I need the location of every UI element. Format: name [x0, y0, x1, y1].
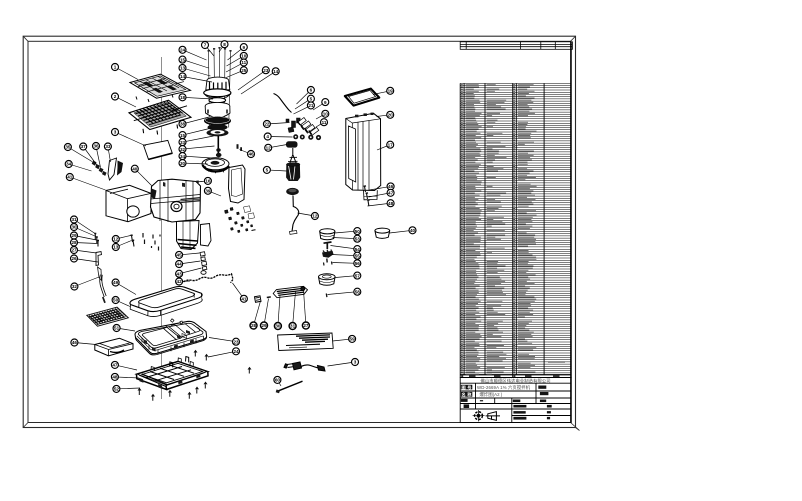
svg-text:16: 16 [205, 179, 211, 184]
svg-text:30: 30 [275, 324, 281, 329]
svg-text:31: 31 [290, 324, 296, 329]
svg-text:15: 15 [180, 133, 186, 138]
svg-text:49: 49 [113, 280, 119, 285]
svg-text:56: 56 [355, 261, 361, 266]
svg-text:名称: 名称 [462, 391, 473, 398]
svg-text:11: 11 [322, 120, 327, 125]
svg-text:爆炸图(A2 ): 爆炸图(A2 ) [480, 391, 503, 398]
svg-text:36: 36 [93, 144, 99, 149]
svg-text:7: 7 [204, 43, 207, 48]
svg-text:24: 24 [233, 349, 239, 354]
svg-text:32: 32 [72, 284, 78, 289]
svg-text:58: 58 [355, 289, 361, 294]
svg-text:20: 20 [388, 112, 394, 117]
svg-text:40: 40 [132, 166, 138, 171]
svg-text:50: 50 [113, 298, 119, 303]
svg-text:34: 34 [180, 154, 186, 159]
svg-text:23: 23 [263, 68, 269, 73]
svg-text:1: 1 [114, 65, 117, 70]
svg-text:57: 57 [355, 273, 361, 278]
svg-text:27: 27 [71, 248, 77, 253]
svg-text:18: 18 [180, 95, 186, 100]
svg-text:12: 12 [113, 237, 119, 242]
svg-text:35: 35 [65, 145, 71, 150]
svg-text:32: 32 [180, 147, 186, 152]
svg-text:47: 47 [388, 190, 394, 195]
svg-text:30: 30 [71, 225, 77, 230]
svg-text:29: 29 [261, 323, 267, 328]
svg-text:46: 46 [248, 152, 254, 157]
svg-text:22: 22 [264, 122, 270, 127]
svg-text:WD-2669A 1% 六页搅拌机: WD-2669A 1% 六页搅拌机 [477, 384, 531, 391]
svg-text:4: 4 [266, 134, 269, 139]
svg-text:31: 31 [71, 217, 77, 222]
svg-text:15: 15 [180, 57, 186, 62]
svg-text:47: 47 [112, 363, 118, 368]
svg-text:佛山市顺德区伟达电业制造有限公司: 佛山市顺德区伟达电业制造有限公司 [481, 377, 551, 384]
svg-text:52: 52 [114, 387, 120, 392]
svg-text:41: 41 [241, 296, 247, 301]
svg-text:50: 50 [355, 229, 361, 234]
svg-text:23: 23 [233, 339, 239, 344]
svg-text:13: 13 [113, 245, 119, 250]
svg-text:9: 9 [243, 45, 246, 50]
svg-text:8: 8 [223, 42, 226, 47]
svg-text:45: 45 [177, 253, 183, 258]
svg-text:33: 33 [180, 140, 186, 145]
svg-text:3: 3 [354, 360, 357, 365]
svg-text:10: 10 [323, 111, 329, 116]
svg-text:37: 37 [81, 144, 87, 149]
svg-text:13: 13 [180, 66, 186, 71]
svg-text:10: 10 [241, 54, 247, 59]
svg-text:3: 3 [114, 130, 117, 135]
svg-text:12: 12 [266, 145, 272, 150]
svg-text:33: 33 [105, 144, 111, 149]
svg-text:19: 19 [388, 88, 394, 93]
svg-text:38: 38 [180, 122, 186, 127]
svg-text:14: 14 [273, 69, 279, 74]
svg-text:60: 60 [275, 378, 281, 383]
svg-text:46: 46 [72, 340, 78, 345]
svg-text:42: 42 [177, 279, 183, 284]
svg-text:39: 39 [205, 188, 211, 193]
svg-text:5: 5 [266, 168, 269, 173]
svg-text:53: 53 [355, 236, 361, 241]
svg-text:9: 9 [324, 100, 327, 105]
svg-text:51: 51 [114, 326, 120, 331]
svg-text:59: 59 [350, 337, 356, 342]
svg-text:27: 27 [303, 323, 309, 328]
svg-text:48: 48 [388, 201, 394, 206]
svg-text:48: 48 [112, 375, 118, 380]
svg-text:2: 2 [114, 94, 117, 99]
svg-text:55: 55 [355, 253, 361, 258]
svg-text:24: 24 [180, 47, 186, 52]
svg-text:43: 43 [177, 271, 183, 276]
svg-text:图号: 图号 [462, 384, 472, 391]
svg-text:34: 34 [66, 162, 72, 167]
svg-text:14: 14 [180, 74, 186, 79]
svg-text:29: 29 [71, 233, 77, 238]
svg-text:26: 26 [71, 256, 77, 261]
svg-text:46: 46 [388, 184, 394, 189]
svg-text:41: 41 [67, 175, 73, 180]
svg-text:44: 44 [177, 262, 183, 267]
svg-text:28: 28 [71, 240, 77, 245]
svg-text:6: 6 [310, 88, 313, 93]
svg-text:28: 28 [251, 323, 257, 328]
svg-text:12: 12 [312, 214, 318, 219]
svg-text:11: 11 [241, 60, 246, 65]
svg-text:25: 25 [241, 68, 247, 73]
svg-text:17: 17 [388, 142, 394, 147]
svg-text:40: 40 [410, 228, 416, 233]
svg-text:54: 54 [355, 247, 361, 252]
svg-text:21: 21 [308, 103, 314, 108]
svg-text:5: 5 [310, 96, 313, 101]
svg-text:30: 30 [180, 161, 186, 166]
